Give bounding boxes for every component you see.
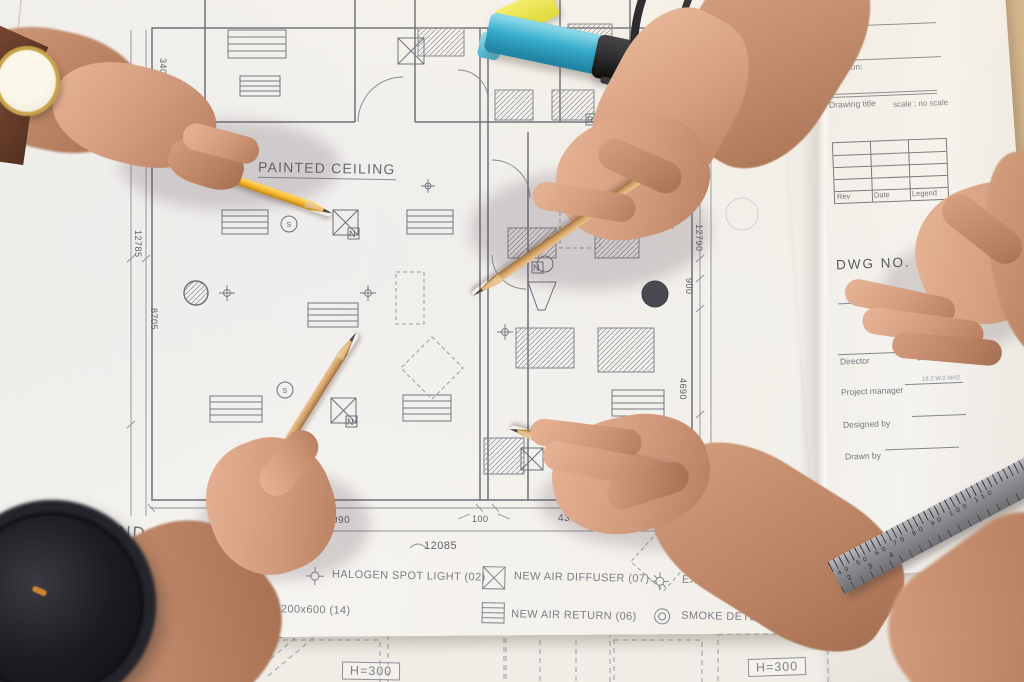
photo-scene: H=300 H=300 3 [0,0,1024,682]
dim-right-4690: 4690 [678,378,688,400]
x-square-icon [482,566,506,590]
smoke-s2: S [283,388,288,395]
unit-label-n1: N [349,229,356,239]
lined-square-icon [481,602,505,624]
revision-table: Rev Date Legend [832,138,949,204]
dim-bottom-12085: 12085 [424,540,457,552]
legend-column-header: Legend [912,188,937,198]
stamp-mark [726,198,758,230]
drawing-title-label: Drawing title [829,98,876,110]
dim-left-12785: 12785 [133,230,143,258]
designed-by-label: Designed by [843,418,891,430]
smoke-detector-icon [653,607,671,625]
dim-left-8705: 8705 [149,308,159,330]
dim-right-900: 900 [684,278,694,295]
smoke-s1: S [287,222,292,229]
date-column-header: Date [874,190,890,200]
drawn-by-label: Drawn by [845,450,881,461]
sprinkler-icon [650,571,670,591]
dim-bottom-100: 100 [472,514,489,524]
rev-column-header: Rev [837,192,851,202]
unit-label-n3: N [347,417,354,427]
director-label: Director [840,355,870,366]
